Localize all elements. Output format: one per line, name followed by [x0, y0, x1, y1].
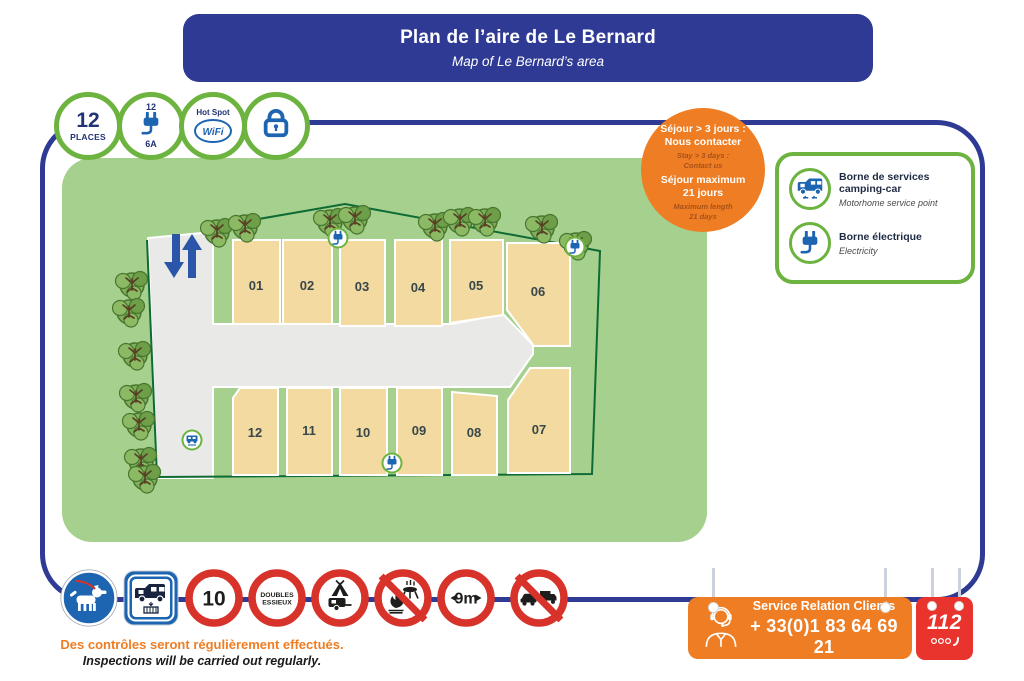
- badge-pin: [927, 601, 937, 611]
- header-band: Plan de l’aire de Le Bernard Map of Le B…: [183, 14, 873, 82]
- page-title: Plan de l’aire de Le Bernard: [183, 27, 873, 49]
- badge-pin: [880, 602, 891, 613]
- headset-operator-icon: [700, 603, 742, 654]
- service-point-marker: [183, 431, 202, 450]
- capacity-badge: 12 PLACES: [54, 92, 122, 160]
- spot-label: 05: [469, 278, 483, 293]
- phone-dial-icon: [928, 635, 962, 652]
- wifi-badge: Hot Spot WiFi: [179, 92, 247, 160]
- sign-speed-limit: 10: [185, 569, 243, 627]
- sign-dog-on-leash: [60, 569, 118, 627]
- stay-en-line4: 21 days: [689, 212, 717, 221]
- stay-en-line3: Maximum length: [673, 202, 732, 211]
- spot-label: 08: [467, 425, 481, 440]
- customer-service-badge: Service Relation Clients + 33(0)1 83 64 …: [688, 597, 912, 659]
- page-subtitle: Map of Le Bernard’s area: [183, 54, 873, 69]
- legend-electric-title: Borne électrique: [839, 231, 922, 243]
- legend-service-subtitle: Motorhome service point: [839, 198, 961, 208]
- sign-no-tents-caravans: [311, 569, 369, 627]
- stay-fr-line4: 21 jours: [641, 187, 765, 200]
- footnote: Des contrôles seront régulièrement effec…: [52, 637, 352, 668]
- axles-line2: ESSIEUX: [262, 600, 292, 607]
- power-badge: 12 6A: [117, 92, 185, 160]
- spot-label: 07: [532, 422, 546, 437]
- wifi-label: WiFi: [202, 127, 223, 138]
- spot-label: 11: [302, 423, 316, 438]
- legend-service-title: Borne de services camping-car: [839, 171, 961, 195]
- motorhome-icon: [789, 168, 831, 210]
- sign-motorhome-service: [122, 569, 180, 627]
- stay-en-line1: Stay > 3 days :: [677, 151, 729, 160]
- legend-item-service: Borne de services camping-car Motorhome …: [789, 168, 961, 210]
- sign-no-fires-bbq: [374, 569, 432, 627]
- spot-label: 09: [412, 423, 426, 438]
- footnote-en: Inspections will be carried out regularl…: [52, 654, 352, 668]
- badge-pin: [954, 601, 964, 611]
- emergency-number: 112: [916, 611, 973, 635]
- spot-label: 01: [249, 278, 263, 293]
- capacity-value: 12: [76, 110, 99, 131]
- contact-phone: + 33(0)1 83 64 69 21: [742, 616, 906, 658]
- electric-point-marker: [566, 238, 585, 257]
- emergency-badge: 112: [916, 597, 973, 660]
- badge-pin: [708, 602, 719, 613]
- lock-icon: [260, 108, 292, 144]
- sign-max-length: 9m: [437, 569, 495, 627]
- speed-limit-value: 10: [202, 588, 225, 611]
- security-badge: [242, 92, 310, 160]
- max-length-value: 9m: [454, 591, 477, 608]
- electric-point-marker: [329, 229, 348, 248]
- spot-label: 02: [300, 278, 314, 293]
- power-amp-bottom: 6A: [145, 140, 157, 149]
- site-map: 010203040506070809101112: [62, 158, 707, 542]
- footnote-fr: Des contrôles seront régulièrement effec…: [52, 637, 352, 652]
- plug-icon: [140, 112, 162, 140]
- legend-electric-subtitle: Electricity: [839, 246, 922, 256]
- stay-fr-line1: Séjour > 3 jours :: [641, 123, 765, 136]
- spot-label: 10: [356, 425, 370, 440]
- plug-icon: [789, 222, 831, 264]
- axles-line1: DOUBLES: [260, 592, 294, 599]
- stay-fr-line3: Séjour maximum: [641, 174, 765, 187]
- stay-en-line2: Contact us: [684, 161, 723, 170]
- wifi-icon: WiFi: [194, 119, 231, 143]
- legend-item-electric: Borne électrique Electricity: [789, 222, 961, 264]
- spot-label: 06: [531, 284, 545, 299]
- power-amp-top: 12: [146, 103, 156, 112]
- wifi-hotspot-label: Hot Spot: [196, 109, 229, 117]
- spot-label: 03: [355, 279, 369, 294]
- stay-rules-badge: Séjour > 3 jours : Nous contacter Stay >…: [641, 108, 765, 232]
- capacity-label: PLACES: [70, 133, 106, 142]
- sign-no-cars-trucks: [510, 569, 568, 627]
- sign-no-tandem-axles: DOUBLES ESSIEUX: [248, 569, 306, 627]
- poster-canvas: Plan de l’aire de Le Bernard Map of Le B…: [0, 0, 1024, 681]
- spot-label: 12: [248, 425, 262, 440]
- stay-fr-line2: Nous contacter: [641, 136, 765, 149]
- legend-box: Borne de services camping-car Motorhome …: [775, 152, 975, 284]
- electric-point-marker: [383, 454, 402, 473]
- spot-label: 04: [411, 280, 426, 295]
